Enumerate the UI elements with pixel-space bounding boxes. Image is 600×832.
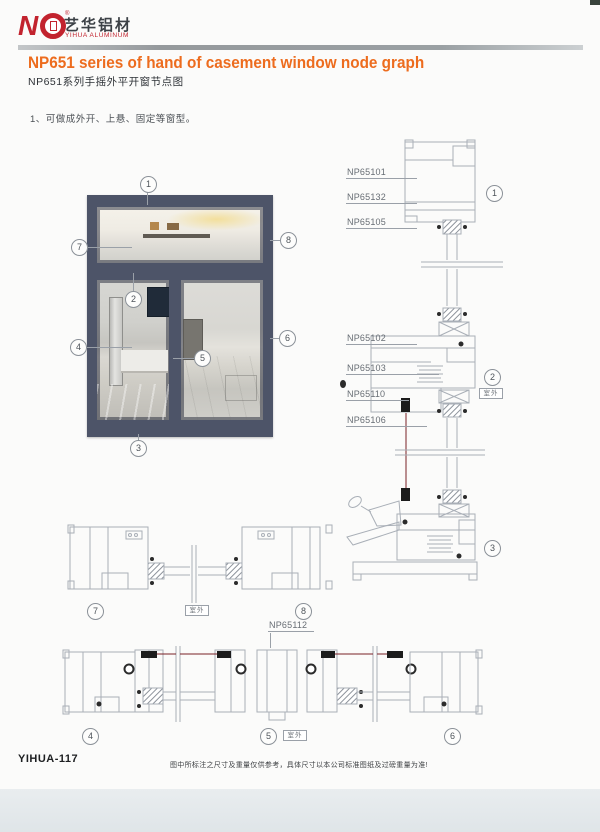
sash-horizontal-section-drawing	[55, 642, 485, 727]
logo-n-glyph: N	[18, 9, 38, 43]
header-divider	[18, 45, 583, 50]
node-circle-6: 6	[444, 728, 461, 745]
part-label-np65106: NP65106	[346, 415, 427, 427]
tv-cabinet	[121, 350, 167, 373]
leader-line	[270, 240, 280, 241]
transom-bar	[93, 263, 267, 280]
leader-line	[86, 347, 132, 348]
outdoor-label-box: 室外	[479, 388, 503, 399]
node-circle-3: 3	[484, 540, 501, 557]
node-circle-5: 5	[260, 728, 277, 745]
window-photo	[87, 195, 273, 437]
right-sash-glass	[181, 280, 263, 420]
page-code: YIHUA-117	[18, 753, 78, 765]
leader-line	[133, 273, 134, 292]
node-circle-2: 2	[484, 369, 501, 386]
part-label-np65132: NP65132	[346, 192, 417, 204]
node-circle-4: 4	[82, 728, 99, 745]
outdoor-label-box: 室外	[283, 730, 307, 741]
paper-crease	[573, 0, 574, 590]
wall-art	[167, 223, 179, 230]
callout-6: 6	[279, 330, 296, 347]
part-label-np65101: NP65101	[346, 167, 417, 179]
yihua-logo-icon: N ®	[18, 9, 66, 45]
leader-line	[87, 247, 132, 248]
floor-inlay	[225, 375, 257, 401]
catalog-page: N ® 艺华铝材 YIHUA ALUMINUM NP651 series of …	[0, 0, 600, 832]
part-label-np65105: NP65105	[346, 217, 417, 229]
scan-background	[0, 789, 600, 832]
transom-horizontal-section-drawing	[60, 515, 340, 615]
logo-seal	[50, 21, 57, 31]
floor-reflection	[97, 384, 169, 420]
leader-line	[270, 338, 279, 339]
part-label-np65112: NP65112	[268, 620, 314, 632]
disclaimer-text: 图中所标注之尺寸及重量仅供参考，具体尺寸以本公司标准图纸及过磅重量为准!	[170, 760, 428, 770]
note-text: 1、可做成外开、上悬、固定等窗型。	[30, 111, 196, 125]
shelf	[143, 234, 209, 238]
callout-1: 1	[140, 176, 157, 193]
page-title-cn: NP651系列手摇外平开窗节点图	[28, 74, 184, 89]
wall-art	[150, 222, 159, 230]
callout-2: 2	[125, 291, 142, 308]
page-title-en: NP651 series of hand of casement window …	[28, 53, 424, 73]
brand-name-en: YIHUA ALUMINUM	[65, 32, 129, 39]
leader-line	[147, 191, 148, 205]
node-circle-1: 1	[486, 185, 503, 202]
part-label-np65102: NP65102	[346, 333, 417, 345]
leader-line	[173, 358, 194, 359]
outdoor-label-box: 室外	[185, 605, 209, 616]
callout-4: 4	[70, 339, 87, 356]
tv-screen	[147, 287, 169, 317]
callout-3: 3	[130, 440, 147, 457]
scan-corner-artifact	[590, 0, 600, 5]
callout-5: 5	[194, 350, 211, 367]
part-label-np65110: NP65110	[346, 389, 409, 401]
node-circle-7: 7	[87, 603, 104, 620]
part-label-np65103: NP65103	[346, 363, 439, 375]
callout-7: 7	[71, 239, 88, 256]
callout-8: 8	[280, 232, 297, 249]
transom-glass	[97, 207, 263, 263]
node-circle-8: 8	[295, 603, 312, 620]
